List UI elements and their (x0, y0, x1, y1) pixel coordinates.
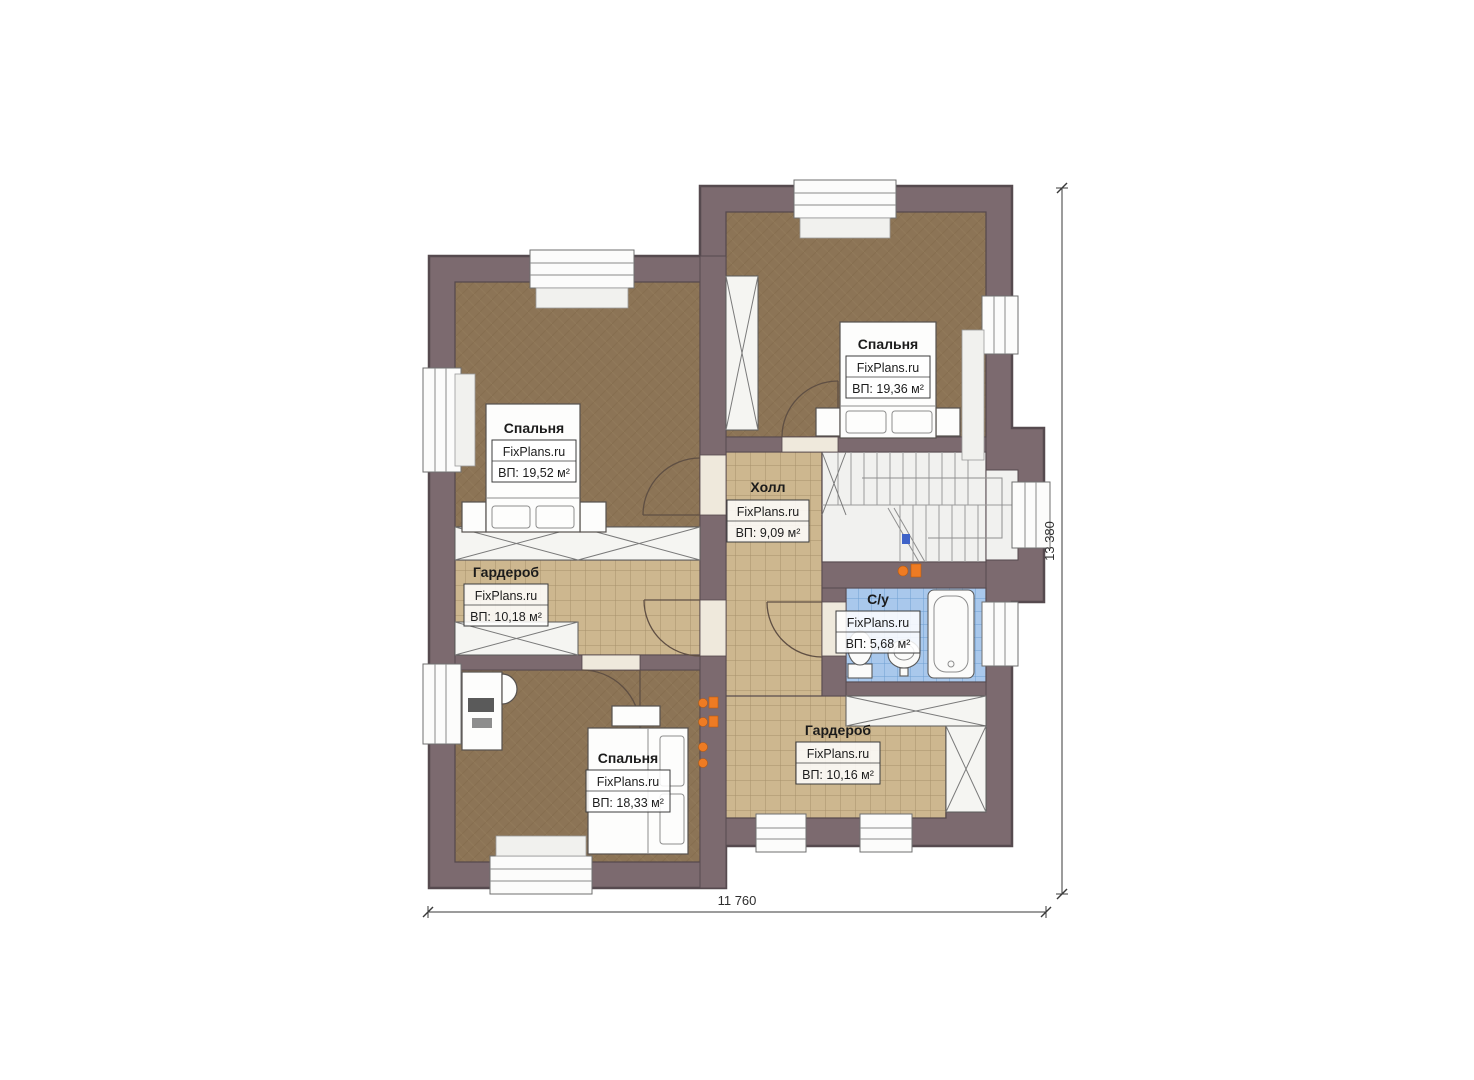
room-brand: FixPlans.ru (475, 589, 538, 603)
room-brand: FixPlans.ru (737, 505, 800, 519)
socket-marker (699, 743, 708, 752)
room-area: ВП: 18,33 м² (592, 796, 664, 810)
dimension-width-label: 11 760 (718, 893, 757, 908)
floor-plan-drawing: Спальня FixPlans.ru ВП: 19,52 м² Спальня… (0, 0, 1474, 1080)
room-label-bedroom-top-right: Спальня FixPlans.ru ВП: 19,36 м² (846, 336, 930, 398)
socket-marker (709, 716, 718, 727)
room-area: ВП: 10,16 м² (802, 768, 874, 782)
room-title: С/у (867, 591, 889, 607)
room-label-wardrobe-right: Гардероб FixPlans.ru ВП: 10,16 м² (796, 722, 880, 784)
room-label-bedroom-top-left: Спальня FixPlans.ru ВП: 19,52 м² (492, 420, 576, 482)
room-brand: FixPlans.ru (503, 445, 566, 459)
socket-marker (699, 699, 708, 708)
room-area: ВП: 10,18 м² (470, 610, 542, 624)
socket-marker (699, 718, 708, 727)
room-title: Спальня (504, 420, 564, 436)
room-title: Гардероб (805, 722, 872, 738)
socket-marker (898, 566, 908, 576)
room-area: ВП: 19,52 м² (498, 466, 570, 480)
room-brand: FixPlans.ru (807, 747, 870, 761)
room-label-wardrobe-left: Гардероб FixPlans.ru ВП: 10,18 м² (464, 564, 548, 626)
room-title: Спальня (598, 750, 658, 766)
socket-marker (699, 759, 708, 768)
floor-stairs (822, 452, 986, 562)
room-brand: FixPlans.ru (597, 775, 660, 789)
room-label-bedroom-bottom: Спальня FixPlans.ru ВП: 18,33 м² (586, 750, 670, 812)
socket-marker (709, 697, 718, 708)
room-area: ВП: 9,09 м² (736, 526, 801, 540)
stair-section-marker (902, 534, 910, 544)
dimension-height-label: 13 380 (1042, 521, 1057, 561)
room-title: Гардероб (473, 564, 540, 580)
room-area: ВП: 5,68 м² (846, 637, 911, 651)
room-brand: FixPlans.ru (847, 616, 910, 630)
room-title: Холл (750, 479, 785, 495)
room-brand: FixPlans.ru (857, 361, 920, 375)
dimension-width: 11 760 (423, 893, 1051, 918)
room-area: ВП: 19,36 м² (852, 382, 924, 396)
floor-plan-page: Спальня FixPlans.ru ВП: 19,52 м² Спальня… (0, 0, 1474, 1080)
socket-marker (911, 564, 921, 577)
dimension-height: 13 380 (1042, 183, 1068, 899)
room-title: Спальня (858, 336, 918, 352)
